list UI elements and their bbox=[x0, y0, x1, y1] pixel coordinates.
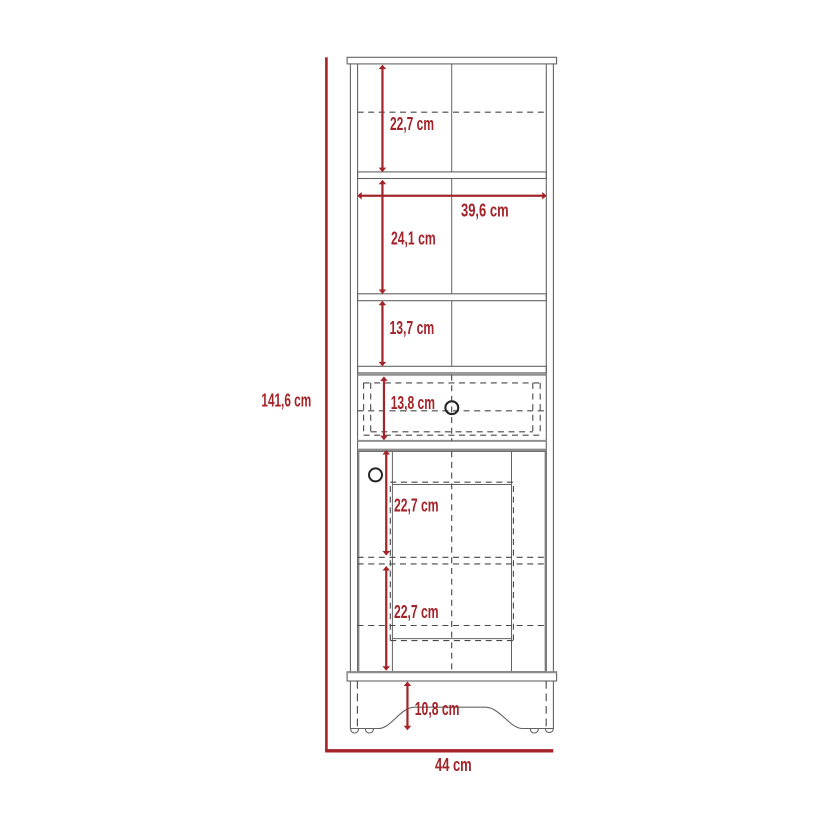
svg-text:22,7 cm: 22,7 cm bbox=[390, 113, 434, 134]
svg-text:13,8 cm: 13,8 cm bbox=[391, 392, 435, 413]
svg-text:39,6 cm: 39,6 cm bbox=[461, 200, 509, 221]
svg-text:44 cm: 44 cm bbox=[435, 754, 472, 775]
svg-text:22,7 cm: 22,7 cm bbox=[394, 495, 439, 516]
svg-text:141,6 cm: 141,6 cm bbox=[261, 389, 311, 410]
svg-text:22,7 cm: 22,7 cm bbox=[394, 601, 439, 622]
svg-text:13,7 cm: 13,7 cm bbox=[390, 317, 435, 338]
svg-text:10,8 cm: 10,8 cm bbox=[415, 698, 460, 719]
svg-text:24,1 cm: 24,1 cm bbox=[391, 228, 436, 249]
